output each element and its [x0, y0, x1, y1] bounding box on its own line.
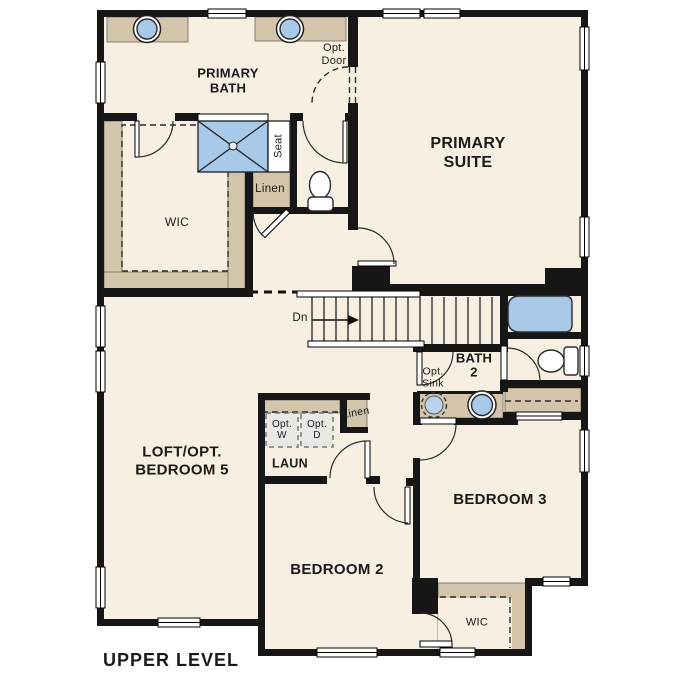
room-label-bath2: BATH 2 — [456, 352, 492, 381]
bedroom3-door-leaf — [420, 418, 456, 424]
plan-title: UPPER LEVEL — [103, 650, 239, 671]
laundry-shelf — [262, 400, 340, 413]
label-opt-sink: Opt. Sink — [422, 366, 444, 391]
label-opt-washer: Opt. W — [272, 419, 292, 441]
label-opt-dryer: Opt. D — [307, 419, 327, 441]
laundry-door-leaf — [365, 441, 370, 478]
label-stairs-down: Dn — [292, 312, 307, 326]
water-closet-door-leaf — [343, 121, 347, 163]
wic-shelf-right — [228, 168, 245, 290]
toilet-icon — [310, 172, 331, 199]
wic-shelf-bottom — [104, 272, 245, 290]
label-seat: Seat — [273, 134, 286, 158]
label-linen-bath: Linen — [255, 183, 285, 197]
bathtub-icon — [508, 296, 572, 332]
wic-primary-door-leaf — [135, 121, 139, 157]
wic2-door-leaf — [420, 641, 452, 647]
room-label-loft: LOFT/OPT. BEDROOM 5 — [135, 443, 229, 478]
room-label-wic-primary: WIC — [165, 215, 189, 229]
wic-shelf-left — [104, 121, 122, 290]
bedroom3-closet-shelf — [505, 388, 581, 412]
suite-door-leaf — [358, 261, 396, 266]
room-label-laundry: LAUN — [272, 457, 308, 472]
bedroom2-door-leaf — [405, 487, 410, 524]
room-label-primary-bath: PRIMARY BATH — [197, 66, 259, 97]
toilet-tank — [308, 197, 333, 211]
floorplan-canvas: PRIMARY BATH PRIMARY SUITE Opt. Door Sea… — [0, 0, 687, 687]
label-opt-door: Opt. Door — [321, 42, 346, 68]
bath2-compartment-door-leaf — [501, 346, 507, 380]
room-label-primary-suite: PRIMARY SUITE — [430, 135, 505, 173]
room-label-wic-bedroom2: WIC — [466, 617, 488, 630]
stair-rail-top — [297, 291, 420, 297]
toilet-tank — [564, 347, 578, 375]
room-label-bedroom3: BEDROOM 3 — [453, 491, 547, 509]
stair-rail-bottom — [308, 341, 424, 347]
toilet-icon — [538, 350, 564, 372]
floorplan-drawing — [0, 0, 687, 687]
shower-drain-icon — [229, 142, 237, 150]
room-label-bedroom2: BEDROOM 2 — [290, 561, 384, 579]
